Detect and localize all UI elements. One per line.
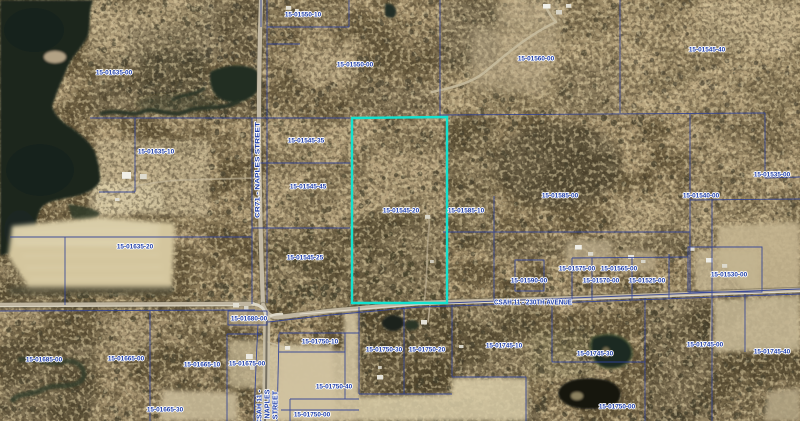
svg-text:15-01635-20: 15-01635-20: [117, 244, 154, 251]
svg-text:15-01545-45: 15-01545-45: [290, 184, 327, 191]
svg-text:15-01745-30: 15-01745-30: [577, 351, 614, 358]
svg-text:15-01745-10: 15-01745-10: [486, 343, 523, 350]
svg-text:15-01590-00: 15-01590-00: [511, 278, 548, 285]
svg-text:15-01545-40: 15-01545-40: [689, 47, 726, 54]
svg-text:15-01665-10: 15-01665-10: [184, 362, 221, 369]
svg-text:15-01680-00: 15-01680-00: [231, 316, 268, 323]
svg-text:15-01745-40: 15-01745-40: [754, 349, 791, 356]
svg-text:15-01560-00: 15-01560-00: [518, 56, 555, 63]
svg-text:CSAH 11 - 230TH AVENUE: CSAH 11 - 230TH AVENUE: [494, 298, 572, 307]
svg-text:15-01530-00: 15-01530-00: [711, 272, 748, 279]
svg-text:15-01545-25: 15-01545-25: [287, 255, 324, 262]
svg-text:15-01750-00: 15-01750-00: [599, 404, 636, 411]
svg-text:15-01685-00: 15-01685-00: [26, 357, 63, 364]
svg-text:15-01665-30: 15-01665-30: [147, 407, 184, 414]
svg-text:15-01540-00: 15-01540-00: [683, 193, 720, 200]
svg-text:15-01550-10: 15-01550-10: [285, 12, 322, 19]
svg-text:15-01635-10: 15-01635-10: [138, 149, 175, 156]
svg-text:15-01675-00: 15-01675-00: [229, 361, 266, 368]
svg-text:15-01550-00: 15-01550-00: [337, 62, 374, 69]
svg-text:15-01750-00: 15-01750-00: [294, 412, 331, 419]
svg-text:15-01750-10: 15-01750-10: [302, 339, 339, 346]
svg-text:15-01535-00: 15-01535-00: [754, 172, 791, 179]
svg-text:15-01750-40: 15-01750-40: [316, 384, 353, 391]
svg-text:15-01545-20: 15-01545-20: [383, 208, 420, 215]
svg-text:15-01750-30: 15-01750-30: [366, 347, 403, 354]
svg-text:15-01570-00: 15-01570-00: [583, 278, 620, 285]
svg-text:15-01750-20: 15-01750-20: [409, 347, 446, 354]
svg-text:15-01635-00: 15-01635-00: [96, 70, 133, 77]
svg-text:15-01575-00: 15-01575-00: [559, 266, 596, 273]
svg-text:CR71 - NAPLES STREET: CR71 - NAPLES STREET: [255, 121, 262, 218]
svg-text:15-01545-35: 15-01545-35: [288, 138, 325, 145]
svg-text:15-01585-00: 15-01585-00: [542, 193, 579, 200]
svg-text:15-01585-10: 15-01585-10: [448, 208, 485, 215]
svg-text:15-01745-00: 15-01745-00: [687, 342, 724, 349]
svg-text:15-01665-00: 15-01665-00: [108, 356, 145, 363]
svg-text:15-01565-00: 15-01565-00: [601, 266, 638, 273]
svg-text:STREET: STREET: [271, 390, 280, 419]
svg-text:15-01525-00: 15-01525-00: [629, 278, 666, 285]
